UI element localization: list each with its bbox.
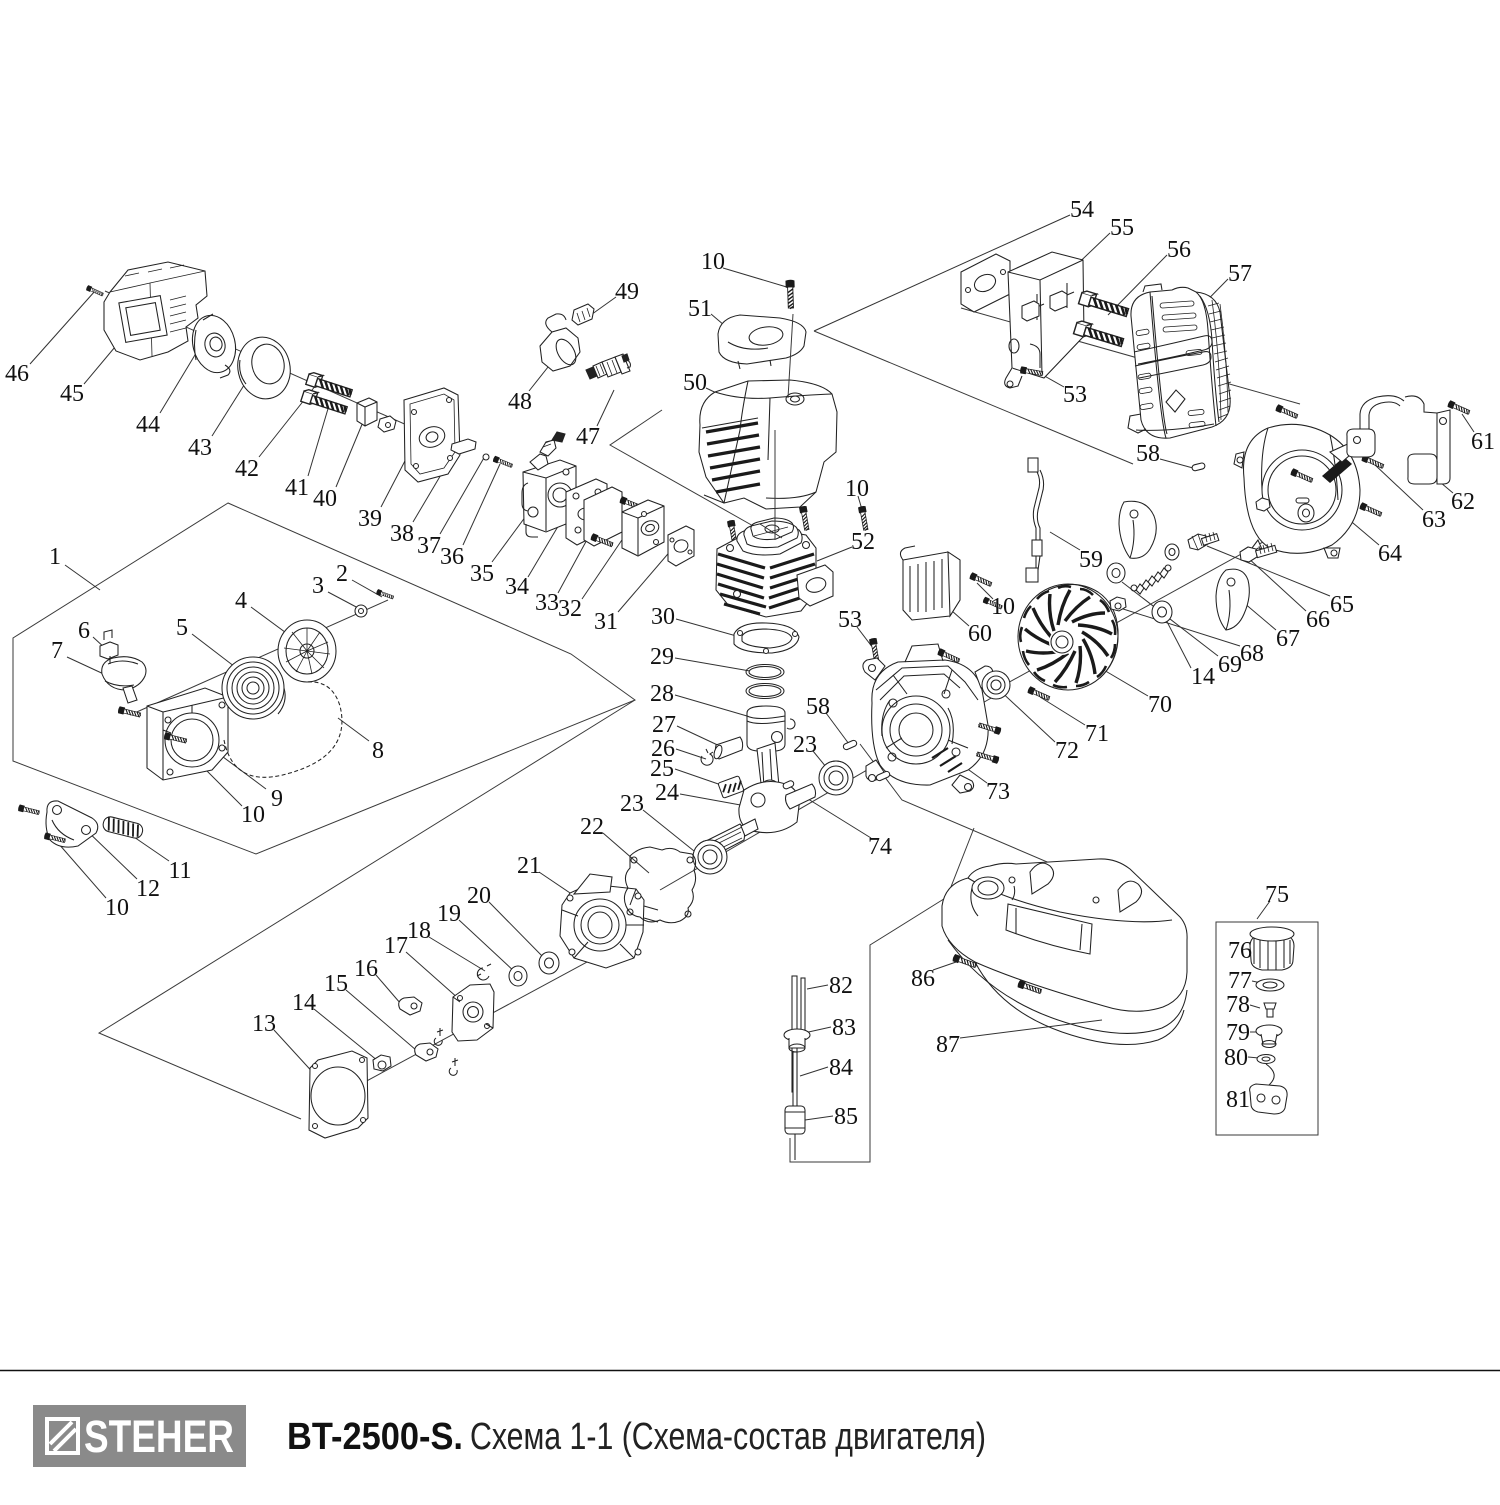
svg-text:9: 9 bbox=[271, 786, 283, 812]
svg-text:55: 55 bbox=[1110, 215, 1134, 241]
svg-text:34: 34 bbox=[505, 574, 529, 600]
svg-text:53: 53 bbox=[838, 607, 862, 633]
svg-text:74: 74 bbox=[868, 834, 892, 860]
svg-text:63: 63 bbox=[1422, 507, 1446, 533]
svg-text:33: 33 bbox=[535, 590, 559, 616]
svg-text:62: 62 bbox=[1451, 489, 1475, 515]
svg-text:39: 39 bbox=[358, 506, 382, 532]
svg-text:23: 23 bbox=[620, 791, 644, 817]
svg-text:STEHER: STEHER bbox=[84, 1411, 234, 1462]
svg-text:40: 40 bbox=[313, 486, 337, 512]
svg-text:35: 35 bbox=[470, 561, 494, 587]
svg-text:23: 23 bbox=[793, 732, 817, 758]
svg-text:42: 42 bbox=[235, 456, 259, 482]
svg-text:32: 32 bbox=[558, 596, 582, 622]
svg-text:1: 1 bbox=[49, 544, 61, 570]
svg-text:56: 56 bbox=[1167, 237, 1191, 263]
svg-text:3: 3 bbox=[312, 573, 324, 599]
svg-text:69: 69 bbox=[1218, 652, 1242, 678]
svg-text:44: 44 bbox=[136, 412, 160, 438]
svg-text:22: 22 bbox=[580, 814, 604, 840]
svg-text:66: 66 bbox=[1306, 607, 1330, 633]
svg-text:75: 75 bbox=[1265, 882, 1289, 908]
svg-text:61: 61 bbox=[1471, 429, 1495, 455]
svg-text:11: 11 bbox=[168, 858, 191, 884]
svg-text:12: 12 bbox=[136, 876, 160, 902]
svg-text:60: 60 bbox=[968, 621, 992, 647]
svg-text:14: 14 bbox=[292, 990, 316, 1016]
svg-text:30: 30 bbox=[651, 604, 675, 630]
svg-text:21: 21 bbox=[517, 853, 541, 879]
svg-text:53: 53 bbox=[1063, 382, 1087, 408]
svg-text:54: 54 bbox=[1070, 197, 1094, 223]
svg-text:4: 4 bbox=[235, 588, 247, 614]
svg-text:78: 78 bbox=[1226, 992, 1250, 1018]
svg-text:7: 7 bbox=[51, 638, 63, 664]
svg-text:84: 84 bbox=[829, 1055, 853, 1081]
svg-text:71: 71 bbox=[1085, 721, 1109, 747]
svg-text:36: 36 bbox=[440, 544, 464, 570]
svg-text:10: 10 bbox=[991, 594, 1015, 620]
svg-text:86: 86 bbox=[911, 966, 935, 992]
svg-text:45: 45 bbox=[60, 381, 84, 407]
svg-text:79: 79 bbox=[1226, 1020, 1250, 1046]
svg-text:64: 64 bbox=[1378, 541, 1402, 567]
svg-text:14: 14 bbox=[1191, 664, 1215, 690]
svg-text:43: 43 bbox=[188, 435, 212, 461]
svg-text:8: 8 bbox=[372, 738, 384, 764]
svg-text:72: 72 bbox=[1055, 738, 1079, 764]
svg-text:59: 59 bbox=[1079, 547, 1103, 573]
svg-text:10: 10 bbox=[105, 895, 129, 921]
svg-text:82: 82 bbox=[829, 973, 853, 999]
svg-text:5: 5 bbox=[176, 615, 188, 641]
svg-text:50: 50 bbox=[683, 370, 707, 396]
svg-text:87: 87 bbox=[936, 1032, 960, 1058]
svg-text:49: 49 bbox=[615, 279, 639, 305]
svg-text:17: 17 bbox=[384, 933, 408, 959]
svg-text:81: 81 bbox=[1226, 1087, 1250, 1113]
svg-text:25: 25 bbox=[650, 756, 674, 782]
svg-text:24: 24 bbox=[655, 780, 679, 806]
svg-text:77: 77 bbox=[1228, 968, 1252, 994]
svg-text:85: 85 bbox=[834, 1104, 858, 1130]
svg-text:38: 38 bbox=[390, 521, 414, 547]
svg-text:58: 58 bbox=[806, 694, 830, 720]
svg-text:67: 67 bbox=[1276, 626, 1300, 652]
svg-text:BT-2500-S.Схема 1-1 (Схема-сос: BT-2500-S.Схема 1-1 (Схема-состав двигат… bbox=[287, 1416, 986, 1458]
svg-text:10: 10 bbox=[241, 802, 265, 828]
svg-text:41: 41 bbox=[285, 475, 309, 501]
svg-text:48: 48 bbox=[508, 389, 532, 415]
svg-text:18: 18 bbox=[407, 918, 431, 944]
svg-text:13: 13 bbox=[252, 1011, 276, 1037]
svg-text:27: 27 bbox=[652, 712, 676, 738]
svg-text:31: 31 bbox=[594, 609, 618, 635]
svg-text:76: 76 bbox=[1228, 938, 1252, 964]
svg-text:10: 10 bbox=[701, 249, 725, 275]
svg-text:10: 10 bbox=[845, 476, 869, 502]
svg-text:52: 52 bbox=[851, 529, 875, 555]
svg-text:15: 15 bbox=[324, 971, 348, 997]
svg-text:37: 37 bbox=[417, 533, 441, 559]
svg-text:6: 6 bbox=[78, 618, 90, 644]
svg-text:65: 65 bbox=[1330, 592, 1354, 618]
svg-text:58: 58 bbox=[1136, 441, 1160, 467]
svg-text:2: 2 bbox=[336, 561, 348, 587]
svg-text:57: 57 bbox=[1228, 261, 1252, 287]
svg-text:83: 83 bbox=[832, 1015, 856, 1041]
svg-text:47: 47 bbox=[576, 424, 600, 450]
svg-text:46: 46 bbox=[5, 361, 29, 387]
svg-text:16: 16 bbox=[354, 956, 378, 982]
svg-text:19: 19 bbox=[437, 901, 461, 927]
svg-text:80: 80 bbox=[1224, 1045, 1248, 1071]
svg-text:51: 51 bbox=[688, 296, 712, 322]
svg-text:20: 20 bbox=[467, 883, 491, 909]
svg-text:70: 70 bbox=[1148, 692, 1172, 718]
svg-text:73: 73 bbox=[986, 779, 1010, 805]
svg-text:29: 29 bbox=[650, 644, 674, 670]
svg-text:28: 28 bbox=[650, 681, 674, 707]
svg-text:68: 68 bbox=[1240, 641, 1264, 667]
